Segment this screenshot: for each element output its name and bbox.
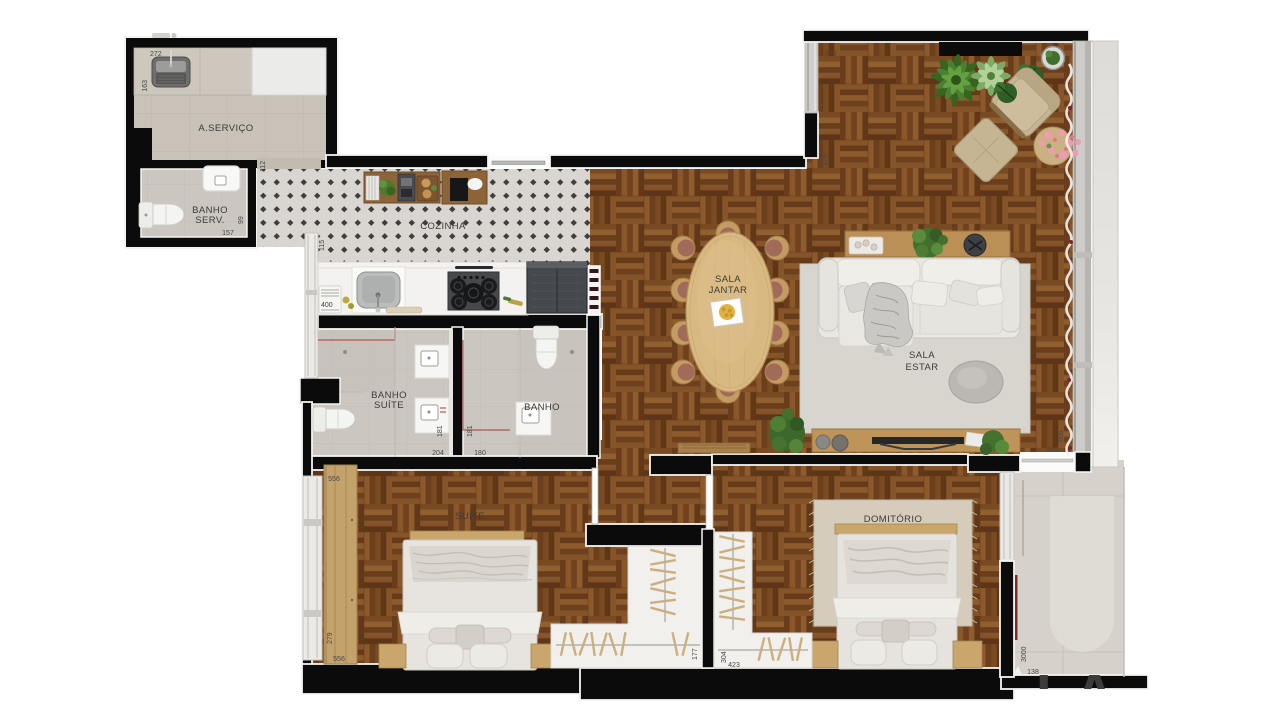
svg-text:SALA: SALA: [909, 350, 935, 361]
svg-text:556: 556: [333, 656, 345, 663]
svg-text:DOMITÓRIO: DOMITÓRIO: [864, 514, 923, 525]
svg-text:115: 115: [319, 240, 326, 251]
svg-text:204: 204: [432, 450, 444, 457]
svg-text:SALA: SALA: [715, 274, 741, 285]
svg-text:179: 179: [822, 154, 829, 166]
svg-text:279: 279: [327, 632, 334, 644]
svg-text:JANTAR: JANTAR: [709, 285, 748, 296]
svg-text:COZINHA: COZINHA: [420, 221, 466, 232]
svg-text:SUÍTE: SUÍTE: [374, 400, 404, 411]
svg-text:378: 378: [825, 51, 837, 58]
svg-text:99: 99: [238, 216, 245, 224]
svg-text:181: 181: [467, 425, 474, 437]
svg-text:ESTAR: ESTAR: [906, 362, 939, 373]
svg-text:112: 112: [260, 161, 267, 172]
svg-text:698: 698: [1047, 447, 1059, 454]
svg-text:605: 605: [1058, 430, 1065, 442]
svg-text:163: 163: [142, 80, 149, 92]
svg-text:556: 556: [328, 476, 340, 483]
svg-text:423: 423: [728, 662, 740, 669]
svg-text:272: 272: [150, 51, 162, 58]
svg-text:3000: 3000: [1021, 646, 1028, 662]
svg-text:180: 180: [474, 450, 486, 457]
svg-text:BANHO: BANHO: [524, 402, 560, 413]
svg-text:SERV.: SERV.: [195, 215, 224, 226]
svg-text:304: 304: [721, 651, 728, 663]
svg-text:A.SERVIÇO: A.SERVIÇO: [198, 123, 253, 134]
svg-text:138: 138: [1027, 669, 1039, 676]
svg-text:177: 177: [692, 648, 699, 660]
svg-text:181: 181: [437, 425, 444, 437]
svg-text:157: 157: [222, 230, 234, 237]
svg-text:400: 400: [321, 302, 333, 309]
svg-text:SUÍTE: SUÍTE: [455, 511, 485, 522]
